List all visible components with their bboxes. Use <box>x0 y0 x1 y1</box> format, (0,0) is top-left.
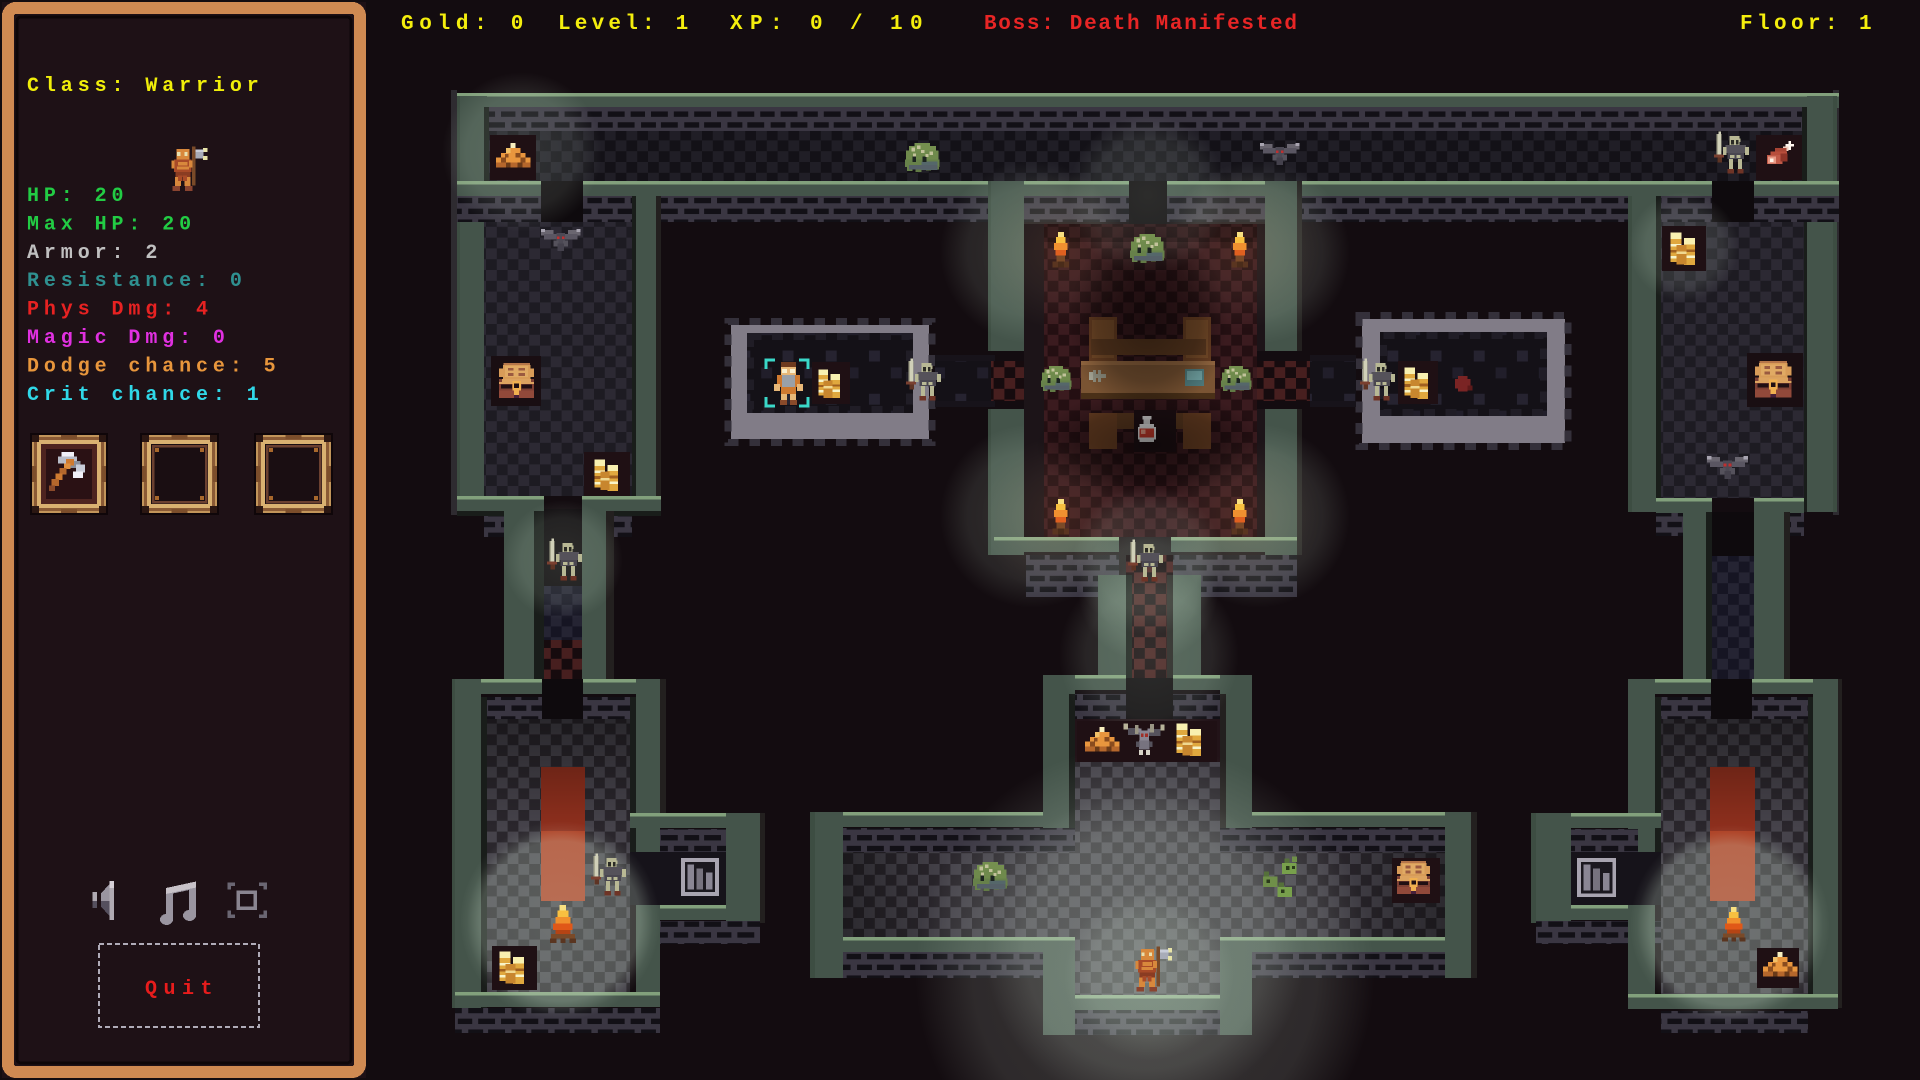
svg-text:Class: Warrior: Class: Warrior <box>27 75 264 98</box>
svg-text:Floor: 1: Floor: 1 <box>1740 13 1876 36</box>
svg-text:Dodge chance: 5: Dodge chance: 5 <box>27 355 281 378</box>
svg-text:Level: 1: Level: 1 <box>558 13 692 36</box>
svg-text:Boss: Death Manifested: Boss: Death Manifested <box>984 13 1299 36</box>
svg-text:Gold: 0: Gold: 0 <box>401 13 529 36</box>
svg-text:Crit chance: 1: Crit chance: 1 <box>27 384 264 407</box>
svg-text:XP: 0 / 10: XP: 0 / 10 <box>730 13 930 36</box>
svg-text:Armor: 2: Armor: 2 <box>27 242 162 265</box>
svg-text:Resistance: 0: Resistance: 0 <box>27 270 247 293</box>
svg-text:HP: 20: HP: 20 <box>27 185 128 208</box>
svg-text:Quit: Quit <box>145 978 219 1001</box>
svg-text:Magic Dmg: 0: Magic Dmg: 0 <box>27 327 230 350</box>
svg-text:Phys Dmg: 4: Phys Dmg: 4 <box>27 299 213 322</box>
svg-text:Max HP: 20: Max HP: 20 <box>27 213 196 236</box>
